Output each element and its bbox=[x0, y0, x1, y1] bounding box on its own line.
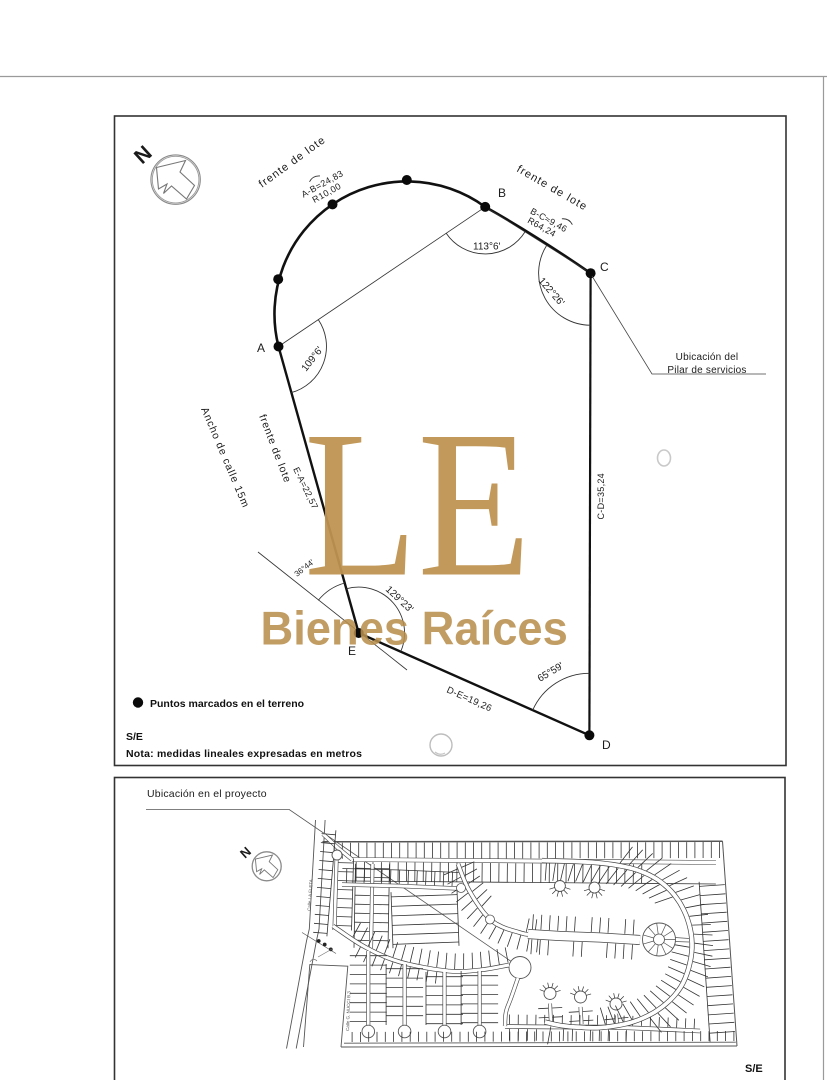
svg-text:C: C bbox=[600, 260, 609, 274]
svg-text:frente de lote: frente de lote bbox=[515, 163, 590, 213]
svg-text:S/E: S/E bbox=[745, 1063, 763, 1075]
svg-text:Ancho de calle 15m: Ancho de calle 15m bbox=[198, 405, 251, 510]
svg-text:LE: LE bbox=[304, 387, 531, 620]
svg-text:C-D=35,24: C-D=35,24 bbox=[596, 473, 606, 519]
svg-text:Puntos marcados en el terreno: Puntos marcados en el terreno bbox=[150, 698, 304, 710]
svg-text:65°59': 65°59' bbox=[536, 661, 566, 685]
svg-text:Bienes Raíces: Bienes Raíces bbox=[261, 601, 568, 654]
svg-text:Calle LA FLETA: Calle LA FLETA bbox=[307, 879, 314, 911]
svg-text:N: N bbox=[130, 141, 157, 168]
svg-text:N: N bbox=[237, 844, 254, 861]
svg-text:Calle G. NUCCI B.3: Calle G. NUCCI B.3 bbox=[345, 991, 351, 1031]
svg-text:D: D bbox=[602, 738, 611, 752]
svg-text:B: B bbox=[498, 186, 506, 200]
svg-text:S/E: S/E bbox=[126, 731, 143, 743]
svg-text:109°6': 109°6' bbox=[300, 345, 326, 374]
svg-text:Ubicación en el proyecto: Ubicación en el proyecto bbox=[147, 788, 267, 800]
svg-text:frente de lote: frente de lote bbox=[256, 413, 293, 485]
svg-text:Nota: medidas lineales expresa: Nota: medidas lineales expresadas en met… bbox=[126, 748, 362, 760]
svg-text:A: A bbox=[257, 341, 265, 355]
svg-text:113°6': 113°6' bbox=[473, 242, 501, 253]
svg-text:Pilar de servicios: Pilar de servicios bbox=[667, 365, 746, 376]
svg-text:122°26': 122°26' bbox=[536, 276, 566, 309]
svg-text:Ubicación del: Ubicación del bbox=[676, 352, 739, 363]
